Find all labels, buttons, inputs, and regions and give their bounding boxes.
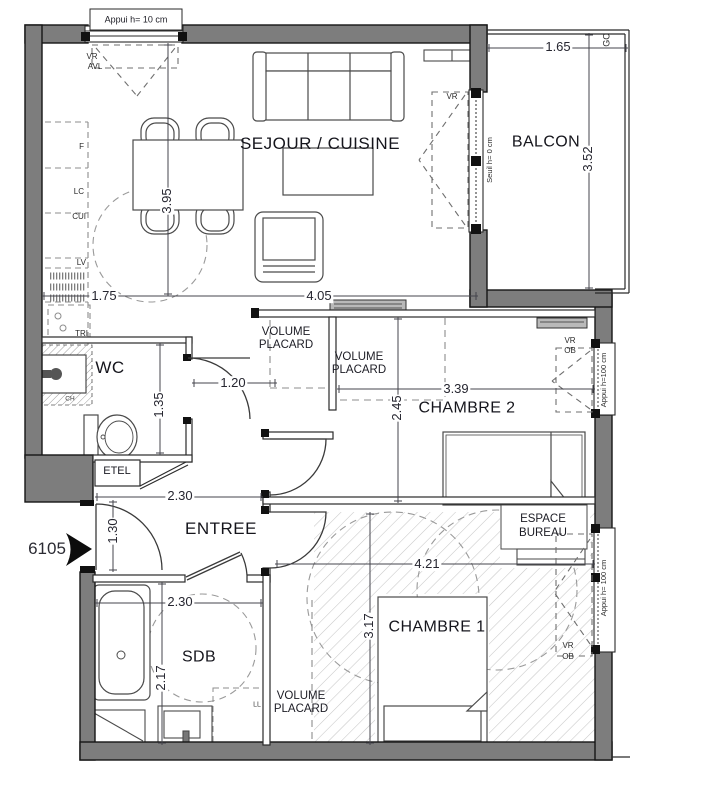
dim-entree-height: 1.30: [106, 517, 120, 544]
room-label-wc: WC: [95, 359, 124, 377]
dining-table: [133, 140, 243, 210]
espace-bureau-line1: ESPACE: [520, 513, 566, 525]
bath-cabinet: [92, 710, 145, 743]
shutter-note-vr-ch2: VR: [564, 337, 575, 345]
desk: [517, 549, 585, 565]
washbasin: [158, 706, 212, 745]
dim-kitchen-width: 1.75: [89, 289, 118, 303]
dim-sdb-height: 2.17: [154, 664, 168, 691]
shutter-note-vr-ch1: VR: [562, 642, 573, 650]
dim-sejour-width: 4.05: [304, 289, 333, 303]
armchair: [255, 212, 323, 282]
tri-glyphs: [55, 313, 66, 331]
shutter-note-avl-top: AVL: [88, 63, 103, 71]
dim-hall-width: 1.20: [218, 376, 247, 390]
tv-shelf: [424, 50, 470, 61]
dim-balcon-width: 1.65: [543, 40, 572, 54]
dim-entree-width: 2.30: [165, 489, 194, 503]
volume-placard-3-line2: PLACARD: [274, 703, 328, 715]
dim-chambre2-width: 3.39: [441, 382, 470, 396]
espace-bureau-line2: BUREAU: [519, 527, 567, 539]
corner-label-gc: GC: [602, 33, 611, 47]
shutter-note-vr-balcony: VR: [446, 93, 457, 101]
etel-diagonal: [140, 462, 188, 489]
room-label-balcon: BALCON: [512, 135, 580, 152]
chambre2-door: [270, 439, 326, 495]
dim-chambre2-height: 2.45: [390, 394, 404, 421]
dim-chambre1-width: 4.21: [412, 557, 441, 571]
dim-sdb-width: 2.30: [165, 595, 194, 609]
bed-chambre2: [443, 432, 585, 505]
room-label-entree: ENTREE: [185, 520, 257, 538]
room-label-sdb: SDB: [182, 650, 216, 667]
coffee-table: [283, 148, 373, 195]
ch-note: CH: [65, 397, 74, 404]
room-label-chambre2: CHAMBRE 2: [419, 401, 516, 418]
radiator-chambre2: [537, 318, 587, 328]
window-sill-note-top: Appui h= 10 cm: [105, 15, 168, 24]
floor-plan: Appui h= 10 cm VR AVL SEJOUR / CUISINE B…: [0, 0, 707, 800]
kitchen-label-cui: CUI: [72, 213, 86, 221]
balcony-door: [469, 88, 483, 234]
kitchen-label-fridge: F: [79, 143, 84, 151]
shutter-note-ob-ch1: OB: [562, 653, 574, 661]
entrance-arrow-icon: [66, 533, 92, 566]
window-sill-note-ch1: Appui h= 100 cm: [600, 560, 608, 617]
volume-placard-2-line1: VOLUME: [335, 351, 384, 363]
volume-placard-1-line1: VOLUME: [262, 326, 311, 338]
shutter-note-vr-top: VR: [86, 53, 97, 61]
kitchen-label-lv: LV: [77, 259, 86, 267]
window-sill-note-ch2: Appui h=100 cm: [600, 353, 608, 407]
room-label-chambre1: CHAMBRE 1: [389, 620, 486, 637]
dim-sejour-height: 3.95: [160, 187, 174, 214]
etel-label: ETEL: [103, 466, 131, 478]
dishwasher-bristles: [50, 276, 86, 298]
volume-placard-3-line1: VOLUME: [277, 690, 326, 702]
volume-placard-2-line2: PLACARD: [332, 364, 386, 376]
washer-dashed: [213, 688, 265, 743]
kitchen-counter: [45, 122, 90, 345]
dim-balcon-height: 3.52: [581, 145, 595, 172]
sdb-door: [186, 552, 247, 580]
bathtub: [93, 585, 150, 700]
wc-sink: [40, 355, 86, 393]
room-label-sejour-cuisine: SEJOUR / CUISINE: [240, 135, 400, 153]
dim-chambre1-height: 3.17: [362, 612, 376, 639]
dim-wc-height: 1.35: [152, 391, 166, 418]
sofa: [253, 52, 404, 121]
ll-note: LL: [253, 701, 261, 708]
threshold-note-balcony: Seuil h= 0 cm: [486, 137, 494, 183]
volume-placard-1-line2: PLACARD: [259, 339, 313, 351]
shutter-note-ob-ch2: OB: [564, 347, 576, 355]
unit-number: 6105: [28, 540, 66, 558]
kitchen-label-lc: LC: [74, 188, 84, 196]
kitchen-label-tri: TRI: [75, 330, 88, 338]
toilet: [84, 415, 137, 459]
